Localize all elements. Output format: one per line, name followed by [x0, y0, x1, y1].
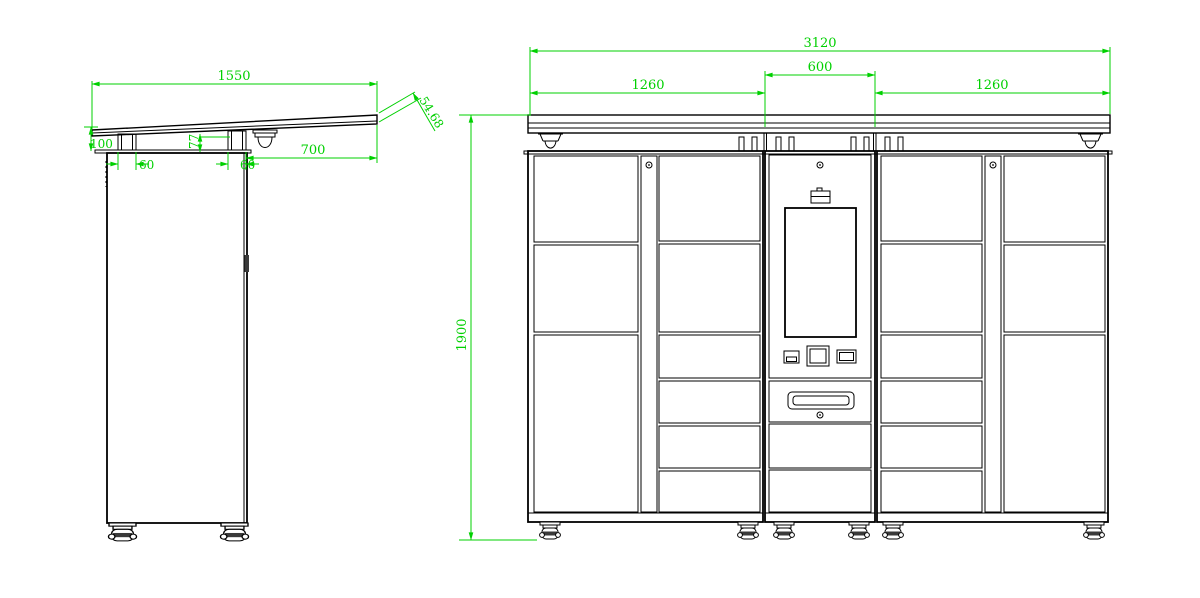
service-panel — [769, 470, 871, 512]
overhang-label: 700 — [301, 143, 326, 158]
dim-right-post: 60 — [216, 152, 259, 172]
dim-apron-height: 100 — [84, 127, 113, 151]
side-door-handle — [245, 255, 250, 272]
card-reader — [811, 188, 830, 203]
locker-door — [1004, 245, 1105, 332]
locker-door — [659, 471, 760, 512]
side-view: 1550 54.68 100 60 — [84, 69, 447, 541]
dim-tabletop-width: 1550 — [92, 69, 377, 129]
front-casters — [540, 522, 1105, 539]
caster-wheel — [1084, 522, 1105, 539]
right-locker-cabinet — [877, 151, 1108, 522]
scanner-window — [784, 351, 799, 363]
side-cabinet — [106, 153, 249, 523]
caster-wheel — [220, 523, 248, 541]
locker-door — [534, 245, 638, 332]
touch-screen — [785, 208, 856, 337]
drawing-canvas: 1550 54.68 100 60 — [0, 0, 1200, 598]
locker-door — [659, 335, 760, 378]
locker-door — [534, 156, 638, 242]
locker-door — [881, 244, 982, 332]
dim-left-post: 60 — [106, 152, 154, 172]
center-console-column — [765, 151, 875, 522]
locker-door — [881, 156, 982, 241]
overall-height-label: 1900 — [455, 318, 470, 351]
locker-door — [659, 381, 760, 423]
locker-door — [881, 335, 982, 378]
left-post-label: 60 — [139, 158, 154, 172]
caster-wheel — [774, 522, 795, 539]
caster-wheel — [738, 522, 759, 539]
front-dimensions: 3120 600 1260 1260 — [455, 36, 1110, 540]
locker-kiosk-technical-drawing: 1550 54.68 100 60 — [0, 0, 1200, 598]
locker-door — [1004, 335, 1105, 512]
side-camera-dome — [253, 130, 277, 148]
reader-window — [837, 350, 856, 363]
caster-wheel — [540, 522, 561, 539]
dim-riser-height: 77 — [187, 134, 230, 152]
riser-height-label: 77 — [187, 134, 201, 149]
locker-door — [659, 244, 760, 332]
side-support-posts — [95, 131, 251, 153]
front-tabletop — [524, 115, 1112, 154]
overall-width-label: 3120 — [803, 36, 836, 51]
front-view: 3120 600 1260 1260 — [455, 36, 1112, 540]
front-camera-domes — [538, 134, 1103, 148]
dim-overall-height: 1900 — [455, 115, 537, 540]
receipt-slot — [788, 392, 854, 409]
side-casters — [108, 523, 248, 541]
caster-wheel — [108, 523, 136, 541]
locker-door — [659, 426, 760, 468]
caster-wheel — [849, 522, 870, 539]
service-panel — [769, 424, 871, 468]
right-section-label: 1260 — [975, 78, 1008, 93]
tabletop-width-label: 1550 — [217, 69, 250, 84]
dim-right-section: 1260 — [875, 78, 1110, 93]
dim-front-edge: 54.68 — [379, 92, 447, 131]
dim-center-section: 600 — [765, 60, 875, 127]
side-tabletop — [92, 115, 377, 136]
locker-door — [1004, 156, 1105, 242]
locker-door — [881, 381, 982, 423]
locker-door — [881, 471, 982, 512]
apron-height-label: 100 — [90, 137, 113, 151]
dim-left-section: 1260 — [530, 78, 765, 93]
left-section-label: 1260 — [631, 78, 664, 93]
locker-door — [534, 335, 638, 512]
locker-door — [659, 156, 760, 241]
right-post-label: 60 — [240, 158, 255, 172]
camera-window — [807, 346, 829, 366]
locker-door — [881, 426, 982, 468]
caster-wheel — [883, 522, 904, 539]
front-edge-label: 54.68 — [416, 94, 446, 131]
dim-overhang: 700 — [246, 125, 377, 163]
left-locker-cabinet — [528, 151, 763, 522]
center-section-label: 600 — [808, 60, 833, 75]
